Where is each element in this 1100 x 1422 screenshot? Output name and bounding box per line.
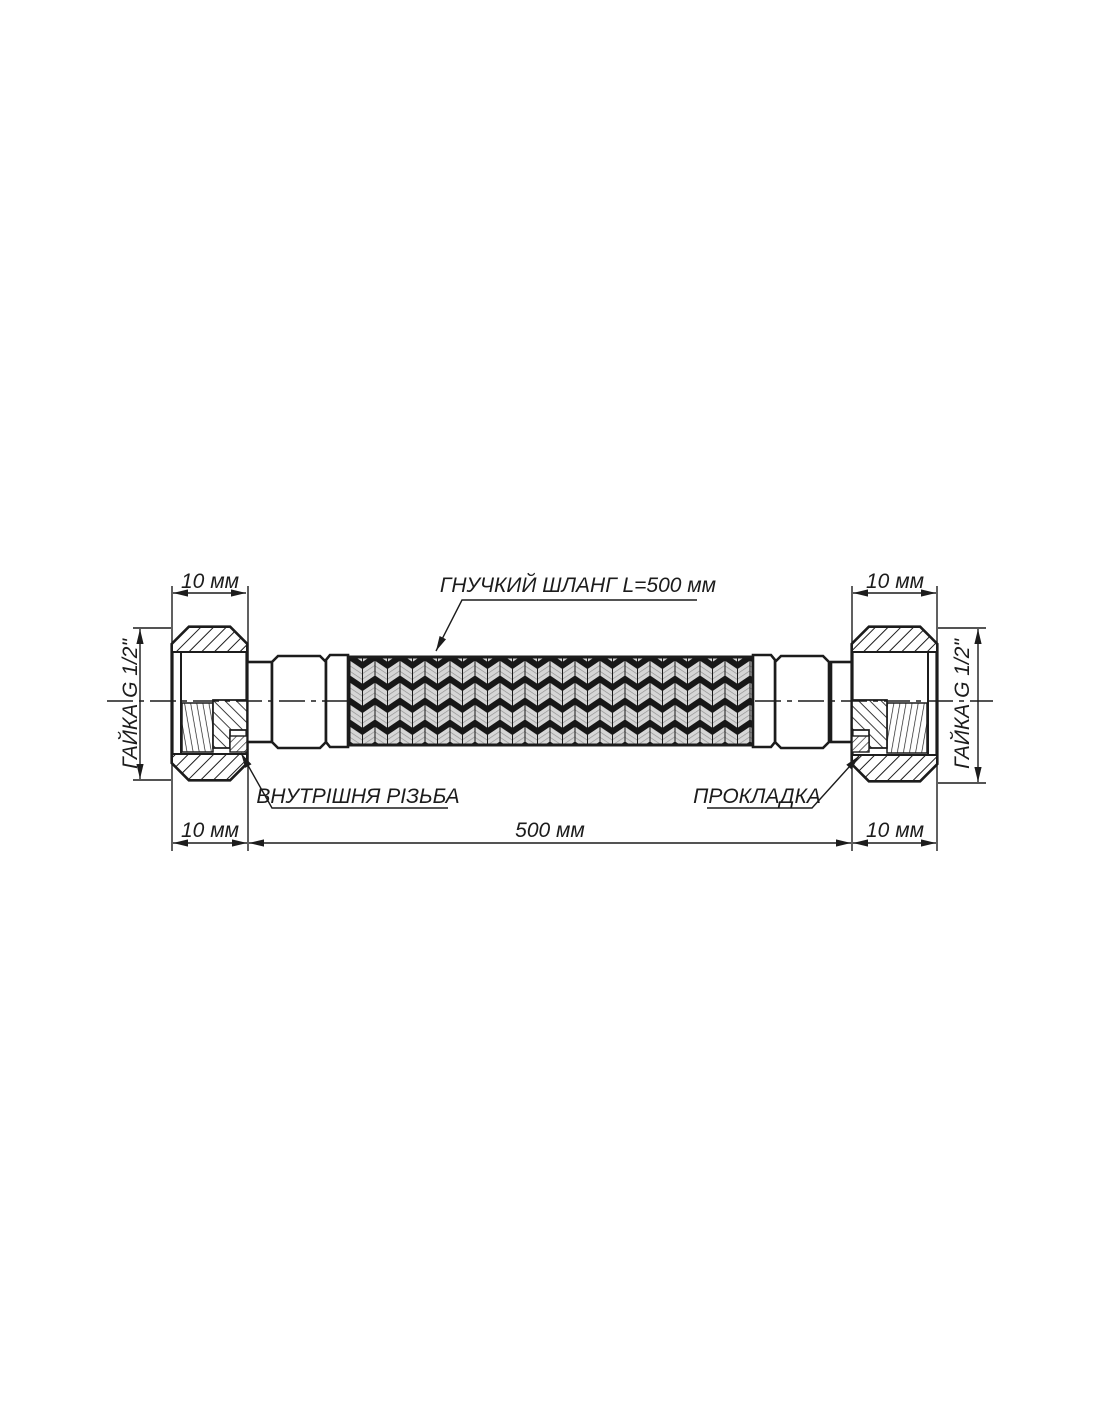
dim-bottom-left-label: 10 мм [181,819,239,842]
left-internal-thread [182,703,213,752]
right-nut-label: ГАЙКА G 1/2" [951,638,974,769]
dim-top-right-label: 10 мм [866,570,924,593]
internal-thread-label: ВНУТРІШНЯ РІЗЬБА [256,785,459,808]
dim-bottom-center-label: 500 мм [515,819,585,842]
hose-technical-drawing: 10 мм 10 мм ГНУЧКИЙ ШЛАНГ L=500 мм ГАЙКА… [0,0,1100,1422]
hose-label: ГНУЧКИЙ ШЛАНГ L=500 мм [440,574,716,597]
leader-hose [436,600,697,651]
dim-bottom-right-label: 10 мм [866,819,924,842]
left-nut [172,627,247,780]
left-gasket [230,736,247,752]
page: 10 мм 10 мм ГНУЧКИЙ ШЛАНГ L=500 мм ГАЙКА… [0,0,1100,1422]
braided-hose [348,657,753,745]
left-nut-label: ГАЙКА G 1/2" [119,638,142,769]
gasket-label: ПРОКЛАДКА [693,785,821,808]
right-gasket [852,736,869,752]
right-internal-thread [887,703,927,753]
dim-top-left-label: 10 мм [181,570,239,593]
right-nut [852,627,937,781]
